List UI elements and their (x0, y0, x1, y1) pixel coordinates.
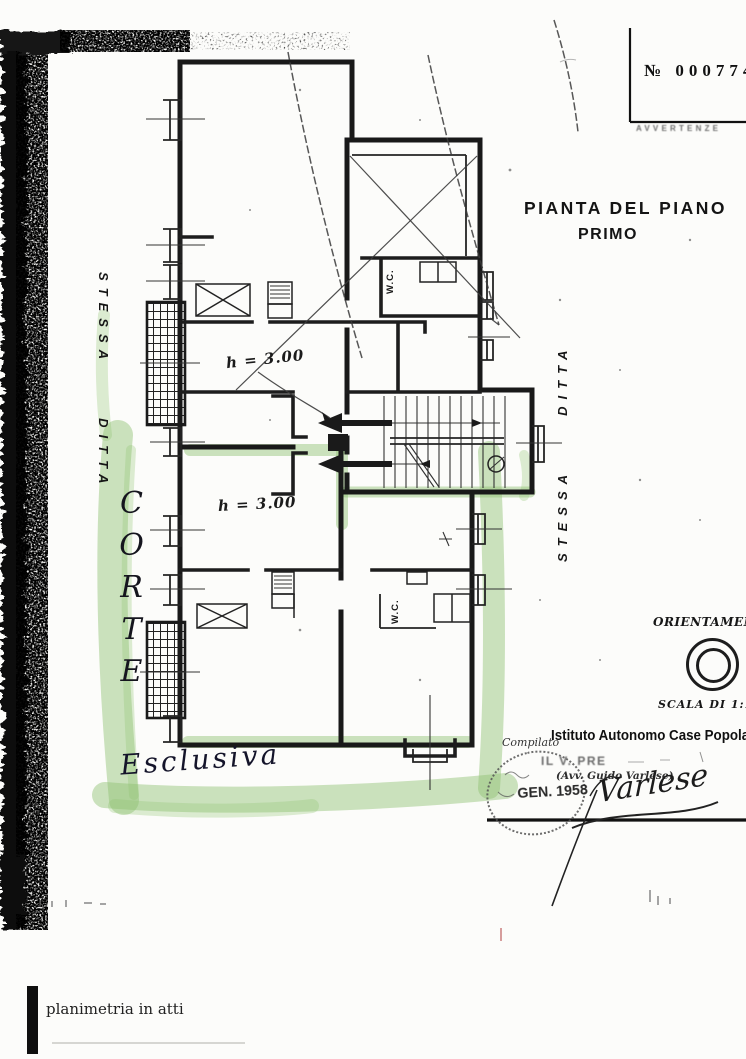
lower-height-label: h = 3.00 (218, 495, 297, 514)
interior-walls (180, 237, 480, 570)
right-margin-label: STESSA DITTA (556, 344, 569, 562)
stamp-marks (498, 59, 703, 796)
floorplan-drawing (0, 0, 746, 1059)
scanned-floorplan-document: № 0007746 AVVERTENZE PIANTA DEL PIANO PR… (0, 0, 746, 1059)
orientation-label: ORIENTAMENTO (653, 616, 746, 628)
orientation-circle-inner (696, 648, 731, 683)
corte-annotation: CORTE (116, 486, 146, 696)
president-role-label: IL V. PRE (541, 755, 607, 767)
number-sign-icon: № (644, 61, 666, 80)
outer-walls (180, 62, 532, 745)
lower-wc-label: W.C. (391, 599, 401, 624)
left-margin-label: STESSA DITTA (97, 272, 110, 490)
door-jamb-block (328, 434, 348, 451)
footer-note: planimetria in atti (46, 1002, 184, 1017)
institute-name: Istituto Autonomo Case Popolari (551, 729, 746, 744)
document-number: № 0007746 (644, 62, 746, 79)
notice-text: AVVERTENZE (636, 125, 721, 133)
plan-subtitle: PRIMO (578, 227, 638, 243)
scale-label: SCALA DI 1:100 (658, 699, 746, 710)
upper-wc-label: W.C. (386, 269, 396, 294)
plan-title: PIANTA DEL PIANO (524, 200, 727, 218)
document-number-value: 0007746 (675, 61, 746, 80)
stamp-date: GEN. 1958 (517, 782, 588, 801)
